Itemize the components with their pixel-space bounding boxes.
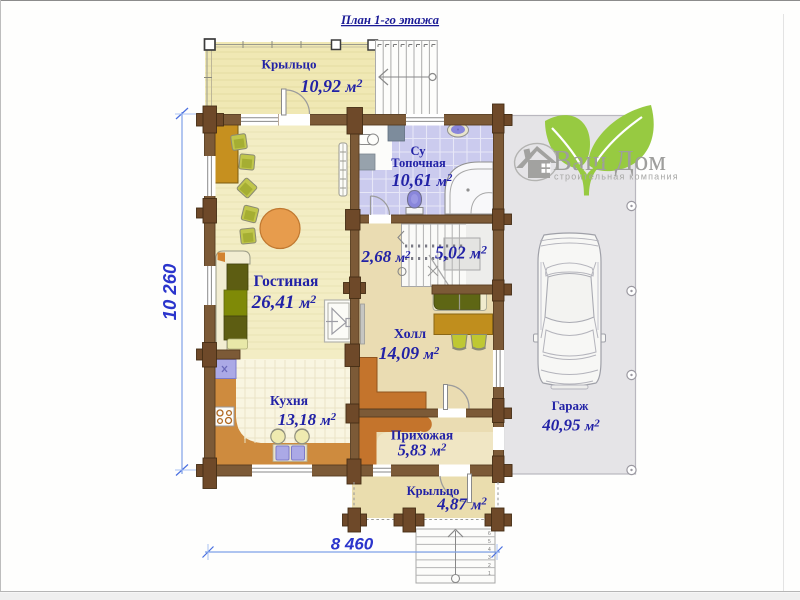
svg-text:План 1-го этажа: План 1-го этажа [340,13,440,27]
svg-text:10 260: 10 260 [159,263,180,320]
svg-text:Крыльцо: Крыльцо [262,57,317,72]
svg-text:3: 3 [488,555,491,561]
svg-text:13,18 м2: 13,18 м2 [278,410,337,429]
svg-text:5: 5 [488,539,491,545]
svg-text:5,02 м2: 5,02 м2 [435,243,487,263]
svg-text:Топочная: Топочная [391,156,446,170]
svg-text:Гараж: Гараж [552,398,589,413]
svg-text:8 460: 8 460 [331,535,374,554]
svg-text:10,92 м2: 10,92 м2 [301,76,363,96]
svg-text:6: 6 [488,531,491,537]
svg-text:Кухня: Кухня [270,393,308,408]
svg-text:4,87 м2: 4,87 м2 [436,495,487,514]
svg-text:Гостиная: Гостиная [254,273,319,290]
svg-text:26,41 м2: 26,41 м2 [251,292,316,313]
svg-text:строительная компания: строительная компания [554,172,679,182]
svg-text:1: 1 [488,571,491,577]
svg-text:Холл: Холл [394,327,426,342]
svg-text:2: 2 [488,563,491,569]
svg-text:5,83 м2: 5,83 м2 [398,441,447,460]
